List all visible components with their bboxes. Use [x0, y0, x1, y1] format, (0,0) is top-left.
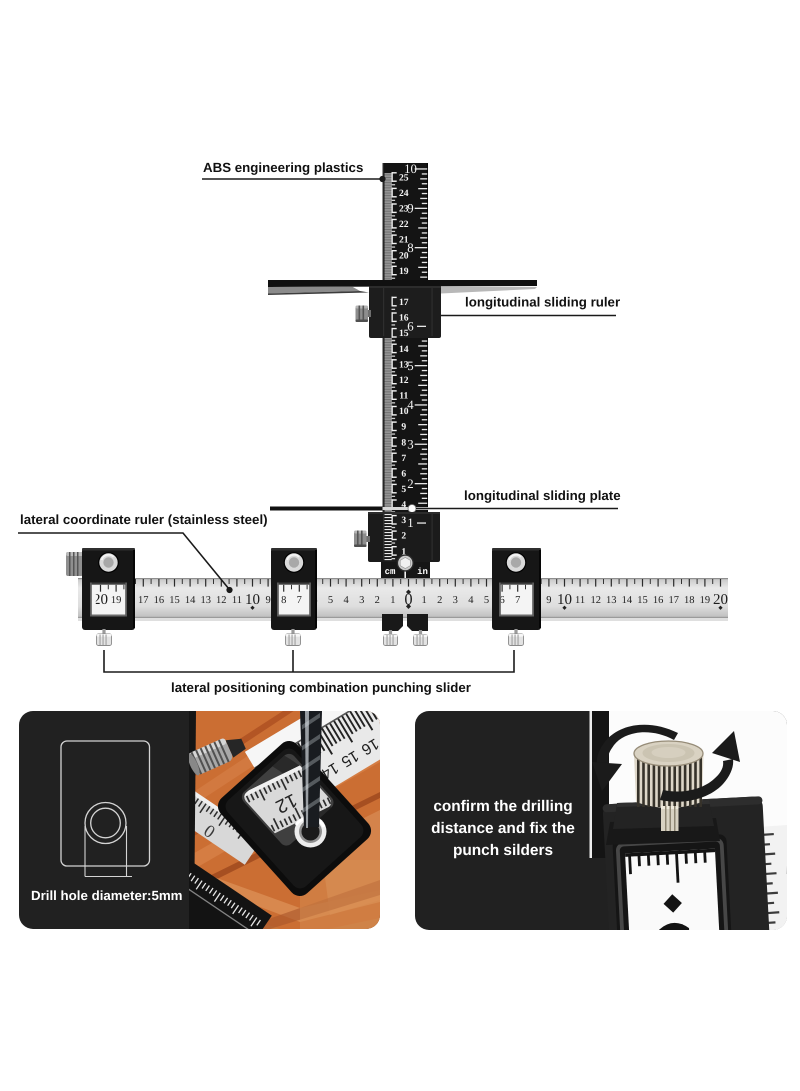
svg-text:2: 2 [407, 477, 413, 491]
svg-text:2: 2 [437, 595, 442, 606]
svg-text:in: in [417, 567, 428, 577]
svg-text:7: 7 [401, 453, 406, 464]
svg-text:9: 9 [546, 595, 551, 606]
svg-text:1: 1 [390, 595, 395, 606]
svg-text:12: 12 [399, 375, 409, 386]
svg-text:7: 7 [297, 595, 302, 606]
svg-text:Drill hole diameter:5mm: Drill hole diameter:5mm [31, 888, 182, 903]
svg-text:15: 15 [637, 595, 648, 606]
svg-text:10: 10 [245, 592, 260, 608]
svg-text:7: 7 [515, 595, 520, 606]
svg-text:19: 19 [399, 266, 409, 277]
svg-text:8: 8 [401, 437, 406, 448]
svg-text:16: 16 [154, 595, 165, 606]
svg-text:1: 1 [421, 595, 426, 606]
svg-text:5: 5 [484, 595, 489, 606]
svg-text:14: 14 [399, 344, 409, 355]
svg-text:13: 13 [200, 595, 211, 606]
svg-text:longitudinal sliding ruler: longitudinal sliding ruler [465, 295, 620, 310]
svg-text:2: 2 [401, 531, 406, 542]
svg-text:14: 14 [622, 595, 633, 606]
svg-text:19: 19 [700, 595, 711, 606]
svg-text:2: 2 [782, 865, 800, 875]
svg-text:17: 17 [668, 595, 679, 606]
svg-text:20: 20 [713, 592, 728, 608]
svg-text:3: 3 [401, 515, 406, 526]
svg-text:17: 17 [399, 297, 409, 308]
svg-text:24: 24 [399, 188, 409, 199]
svg-text:5: 5 [401, 484, 406, 495]
svg-text:4: 4 [343, 595, 349, 606]
svg-text:4: 4 [468, 595, 474, 606]
svg-text:6: 6 [407, 320, 414, 334]
svg-text:22: 22 [399, 219, 409, 230]
svg-text:punch silders: punch silders [453, 842, 553, 859]
svg-text:15: 15 [169, 595, 180, 606]
svg-text:9: 9 [265, 595, 270, 606]
svg-text:ABS engineering plastics: ABS engineering plastics [203, 160, 363, 175]
svg-text:lateral coordinate ruler (stai: lateral coordinate ruler (stainless stee… [20, 512, 268, 527]
svg-text:6: 6 [401, 468, 406, 479]
svg-text:8: 8 [281, 595, 286, 606]
svg-text:18: 18 [684, 595, 695, 606]
svg-text:11: 11 [575, 595, 585, 606]
svg-text:2: 2 [375, 595, 380, 606]
svg-text:12: 12 [590, 595, 601, 606]
svg-text:13: 13 [606, 595, 617, 606]
svg-text:distance and fix the: distance and fix the [431, 820, 575, 837]
svg-text:confirm the drilling: confirm the drilling [433, 798, 572, 815]
svg-text:9: 9 [407, 202, 413, 216]
svg-text:longitudinal sliding plate: longitudinal sliding plate [464, 488, 621, 503]
svg-text:16: 16 [653, 595, 664, 606]
svg-text:3: 3 [407, 438, 413, 452]
svg-text:3: 3 [359, 595, 364, 606]
svg-text:1: 1 [407, 516, 413, 530]
svg-text:lateral positioning combinatio: lateral positioning combination punching… [171, 680, 471, 695]
svg-text:8: 8 [407, 241, 413, 255]
svg-text:4: 4 [407, 398, 414, 412]
svg-text:5: 5 [328, 595, 333, 606]
svg-text:14: 14 [185, 595, 196, 606]
svg-text:5: 5 [407, 359, 413, 373]
svg-text:9: 9 [401, 422, 406, 433]
svg-text:3: 3 [453, 595, 458, 606]
svg-text:10: 10 [557, 592, 572, 608]
svg-text:12: 12 [216, 595, 227, 606]
svg-text:17: 17 [138, 595, 149, 606]
svg-text:cm: cm [385, 567, 396, 577]
svg-text:10: 10 [404, 162, 417, 176]
svg-text:19: 19 [111, 595, 122, 606]
svg-text:11: 11 [232, 595, 242, 606]
